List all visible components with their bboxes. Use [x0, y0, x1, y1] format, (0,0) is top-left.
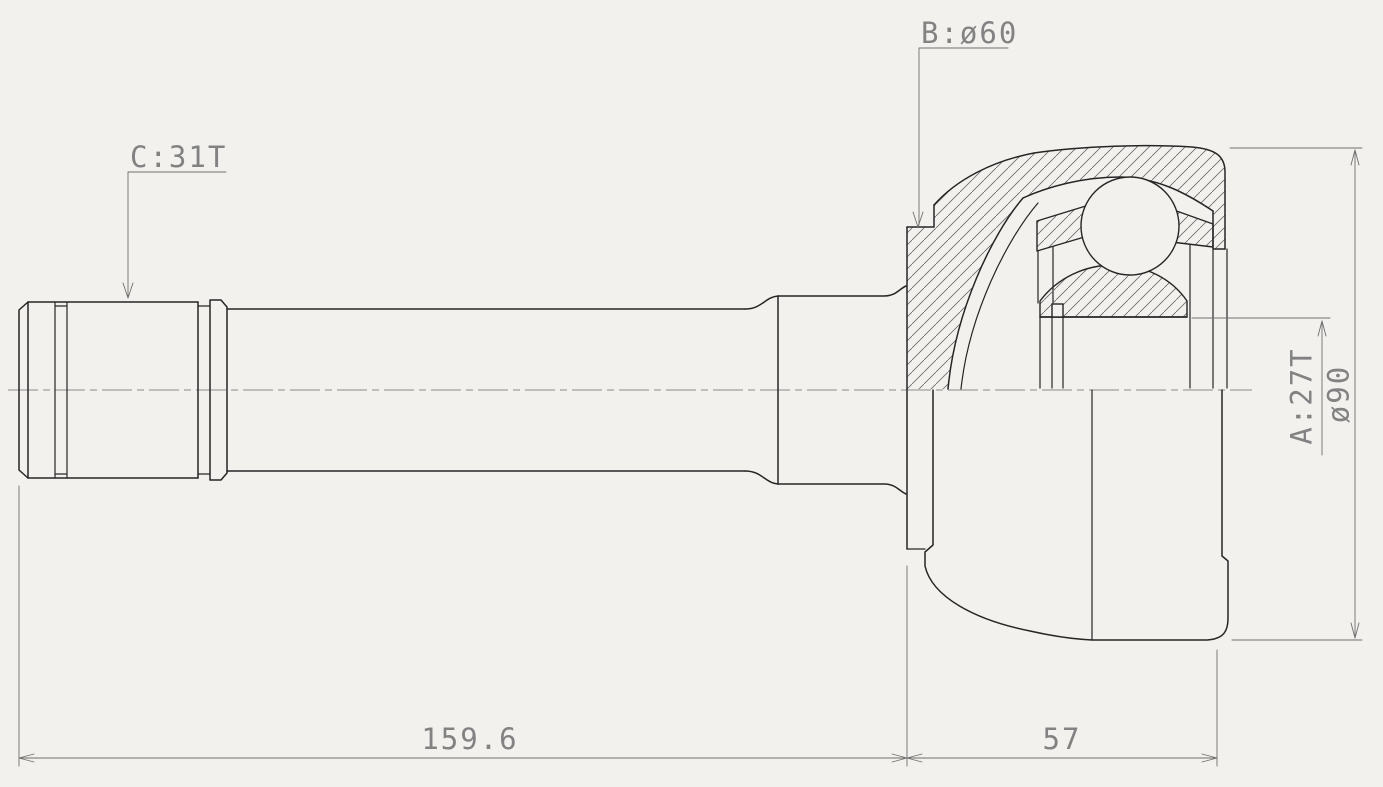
callout-label-b: B:ø60	[921, 19, 1018, 48]
dimension-label-joint-length: 57	[1043, 725, 1082, 754]
dimension-label-outer-diameter: ø90	[1325, 365, 1354, 423]
drawing-canvas: C:31T B:ø60 A:27T ø90 159.6 57	[0, 0, 1383, 787]
bearing-ball	[1081, 177, 1179, 275]
callout-label-c: C:31T	[130, 143, 227, 172]
cv-joint-technical-drawing	[0, 0, 1383, 787]
housing-external-lower	[907, 390, 1228, 640]
dimension-label-shaft-length: 159.6	[421, 725, 518, 754]
dimension-label-a: A:27T	[1288, 347, 1317, 444]
joint-housing-section	[907, 146, 1227, 549]
